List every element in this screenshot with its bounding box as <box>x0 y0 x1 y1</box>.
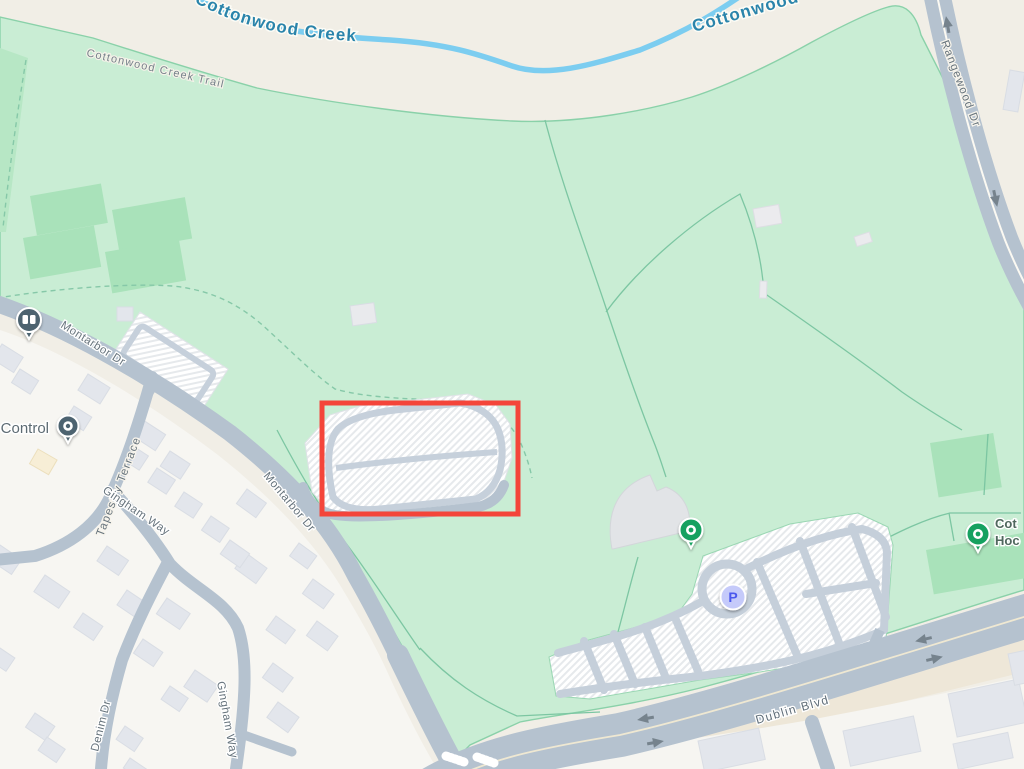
parking-badge[interactable]: P <box>721 585 746 610</box>
park-poi-label-line1: Cot <box>995 516 1017 531</box>
map-canvas[interactable]: Cottonwood Creek Cottonwood Cottonwood C… <box>0 0 1024 769</box>
park-poi-label-line2: Hoc <box>995 533 1020 548</box>
control-poi-label: Control <box>1 420 49 437</box>
parking-icon: P <box>728 589 737 605</box>
